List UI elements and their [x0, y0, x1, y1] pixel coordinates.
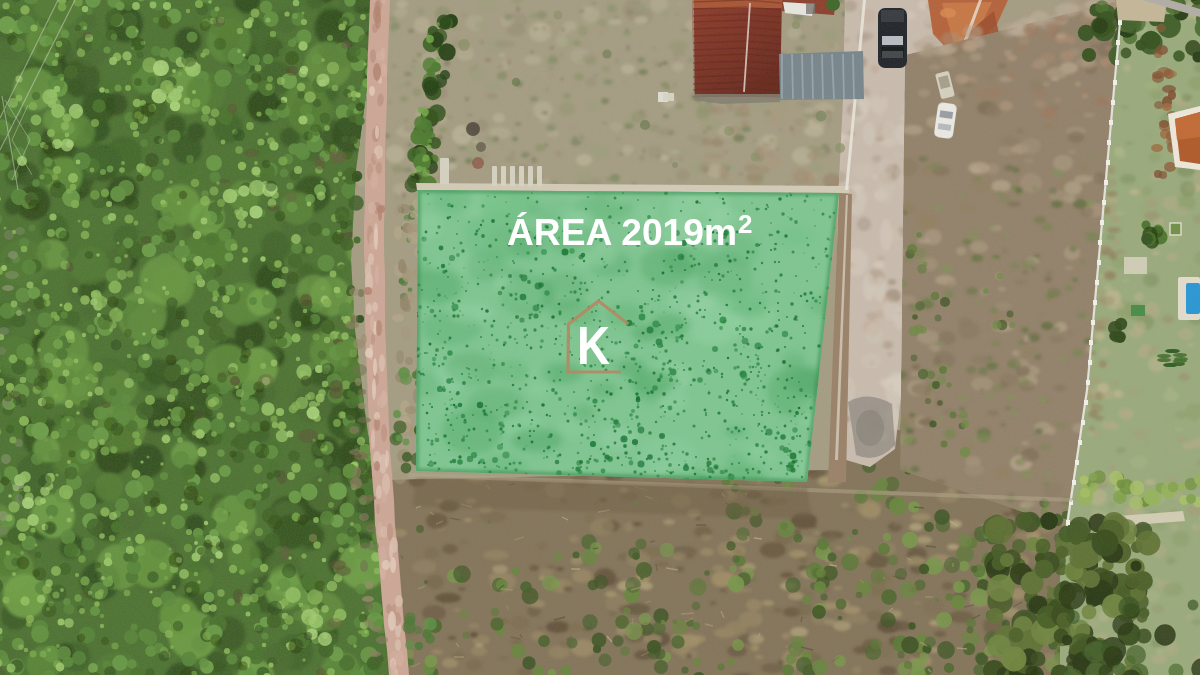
svg-text:ÁREA 2019m: ÁREA 2019m [507, 212, 737, 253]
svg-text:K: K [577, 316, 610, 375]
svg-text:2: 2 [738, 209, 752, 239]
